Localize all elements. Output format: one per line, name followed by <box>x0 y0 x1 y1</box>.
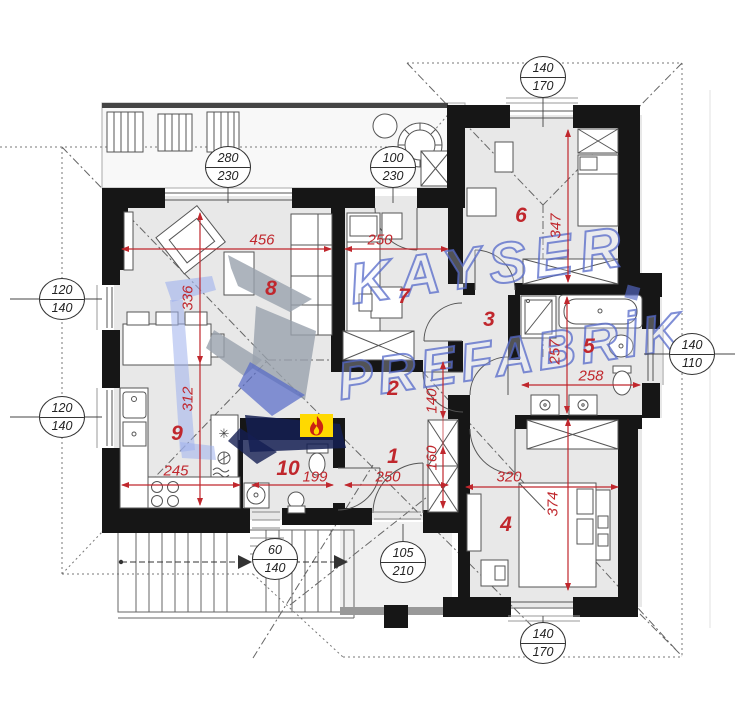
opening-tag-width: 105 <box>381 545 425 562</box>
opening-tag-width: 140 <box>521 626 565 643</box>
opening-tag-width: 280 <box>206 150 250 167</box>
opening-tag-width: 140 <box>521 60 565 77</box>
opening-tag-width: 120 <box>40 400 84 417</box>
opening-tag-height: 170 <box>521 78 565 94</box>
opening-tag-105-210: 105 210 <box>380 541 426 583</box>
opening-tag-140-170-top: 140 170 <box>520 56 566 98</box>
fireplace-flame-icon <box>300 414 333 437</box>
opening-tag-120-140-lower: 120 140 <box>39 396 85 438</box>
opening-tag-width: 120 <box>40 282 84 299</box>
opening-tag-height: 140 <box>40 418 84 434</box>
opening-tag-height: 140 <box>40 300 84 316</box>
opening-tag-140-170-bottom: 140 170 <box>520 622 566 664</box>
opening-tag-280-230: 280 230 <box>205 146 251 188</box>
opening-tag-height: 230 <box>371 168 415 184</box>
opening-tag-140-110: 140 110 <box>669 333 715 375</box>
floor-plan-page: ✳ <box>0 0 751 714</box>
opening-tag-120-140-upper: 120 140 <box>39 278 85 320</box>
opening-tag-100-230: 100 230 <box>370 146 416 188</box>
opening-tag-width: 140 <box>670 337 714 354</box>
opening-tag-height: 210 <box>381 563 425 579</box>
opening-tag-height: 230 <box>206 168 250 184</box>
opening-tag-height: 140 <box>253 560 297 576</box>
opening-tag-height: 110 <box>670 355 714 371</box>
dimension-lines <box>122 130 640 590</box>
opening-tag-height: 170 <box>521 644 565 660</box>
opening-tag-width: 100 <box>371 150 415 167</box>
opening-tag-width: 60 <box>253 542 297 559</box>
annotation-layer <box>0 0 751 714</box>
opening-tag-60-140: 60 140 <box>252 538 298 580</box>
